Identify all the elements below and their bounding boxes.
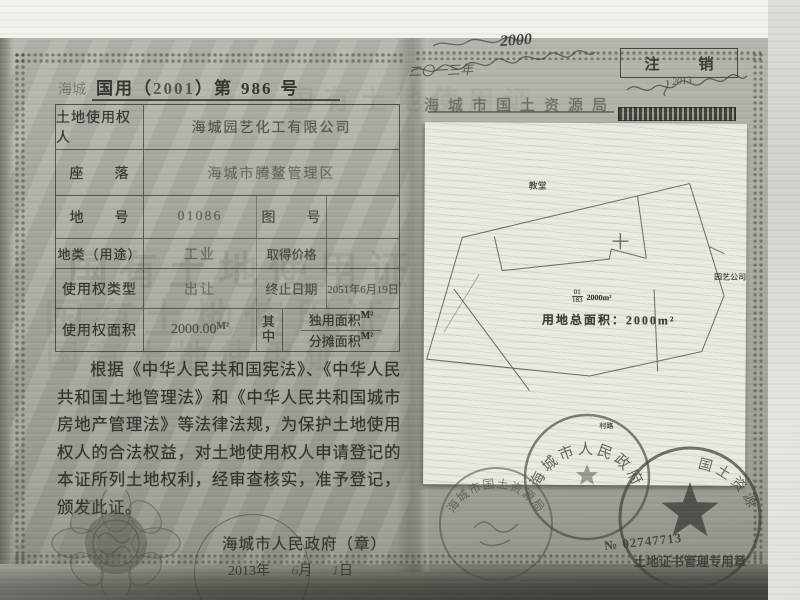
area-value: 2000.00 M² xyxy=(144,309,257,351)
row-label: 使用权面积 xyxy=(56,309,144,351)
row-label: 地 号 xyxy=(56,196,144,238)
area-number: 2000.00 xyxy=(171,322,217,338)
star-icon xyxy=(662,482,719,536)
tenure-type-value: 出让 xyxy=(144,269,257,308)
table-row: 地类（用途） 工业 取得价格 xyxy=(56,239,399,269)
handwritten-date-note: 二〇一三年 xyxy=(408,59,474,80)
location-value: 海城市腾鳌管理区 xyxy=(144,150,399,195)
date-day-suffix: 日 xyxy=(339,564,353,579)
shared-area-cell: 分摊面积 M² xyxy=(301,331,381,352)
table-row: 座 落 海城市腾鳌管理区 xyxy=(56,150,399,196)
sub-unit: M² xyxy=(361,331,373,342)
sub-label: 分摊面积 xyxy=(309,331,361,350)
date-day: 1 xyxy=(332,564,339,579)
serial-suffix: 号 xyxy=(281,79,300,98)
plot-number-value: 01086 xyxy=(144,196,257,238)
map-number-value xyxy=(327,196,399,238)
issuer-line: 海城市人民政府（章） xyxy=(222,532,387,554)
company-label: 园艺公司 xyxy=(714,272,746,283)
issue-date-line: 2013年 6月 1日 xyxy=(228,560,353,580)
border-chain-left xyxy=(14,52,25,564)
serial-part2: ）第 xyxy=(195,79,233,98)
star-seal-caption: 土地证书管理专用章 xyxy=(634,554,747,569)
row-label: 土地使用权人 xyxy=(56,105,144,149)
table-row: 使用权类型 出让 终止日期 2051年6月19日 xyxy=(56,269,399,309)
embossed-flower-seal xyxy=(46,490,186,596)
date-year-suffix: 年 xyxy=(256,564,270,579)
price-value xyxy=(327,239,399,268)
church-label: 教堂 xyxy=(529,179,547,192)
row-label: 座 落 xyxy=(56,150,144,195)
date-month: 6 xyxy=(292,564,299,579)
row-label: 使用权类型 xyxy=(56,269,144,308)
date-month-suffix: 月 xyxy=(299,564,313,579)
cancellation-stamp: 注 销 xyxy=(620,48,738,78)
map-sheet-number: 183 xyxy=(572,297,583,304)
parcel-area: 2000m² xyxy=(587,293,612,302)
sub-area-cells: 独用面积 M² 分摊面积 M² xyxy=(283,309,399,351)
serial-prefix: 海城 xyxy=(58,83,86,98)
qizhong-label: 其中 xyxy=(257,309,283,351)
table-row: 土地使用权人 海城园艺化工有限公司 xyxy=(56,105,399,150)
land-use-table: 土地使用权人 海城园艺化工有限公司 座 落 海城市腾鳌管理区 地 号 01086… xyxy=(55,104,400,352)
land-certificate-star-seal: 国土资源 土地证书管理专用章 xyxy=(608,436,772,600)
rule-line xyxy=(428,111,614,113)
serial-part1: 国用（ xyxy=(96,79,153,98)
smudged-text-box xyxy=(618,107,736,121)
table-row: 使用权面积 2000.00 M² 其中 独用面积 M² 分摊面积 M² xyxy=(56,309,399,351)
row-label2: 图 号 xyxy=(257,196,327,238)
total-area-label: 用地总面积：2000m² xyxy=(542,311,676,329)
certificate-serial-header: 海城国用（2001）第986号 xyxy=(58,74,358,99)
certificate-photo: 国有土地使用证 国有土地使用证 国有土地使用证 国有土地使用证 海城国用（200… xyxy=(0,0,800,600)
holder-value: 海城园艺化工有限公司 xyxy=(144,105,399,149)
row-label2: 取得价格 xyxy=(257,239,327,268)
exclusive-area-cell: 独用面积 M² xyxy=(301,309,381,331)
area-unit: M² xyxy=(217,321,229,332)
row-label2: 终止日期 xyxy=(257,269,327,308)
handwritten-area-note: 2000 xyxy=(499,31,532,51)
date-year: 2013 xyxy=(228,564,256,579)
table-row: 地 号 01086 图 号 xyxy=(56,196,399,239)
page-edge-shadow xyxy=(0,38,14,572)
land-bureau-round-seal: 海城市国土资源局 xyxy=(430,458,562,590)
sub-label: 独用面积 xyxy=(309,310,361,329)
expiry-value: 2051年6月19日 xyxy=(327,269,399,308)
sub-unit: M² xyxy=(361,310,373,321)
serial-year: 2001 xyxy=(153,79,195,98)
row-label: 地类（用途） xyxy=(56,239,144,268)
serial-number: 986 xyxy=(241,79,273,98)
header-underline xyxy=(92,99,340,101)
border-chain-top-left xyxy=(14,52,404,63)
parcel-fraction: 01 183 xyxy=(572,289,583,304)
parcel-fraction-label: 01 183 2000m² xyxy=(572,287,612,305)
land-class-value: 工业 xyxy=(144,239,257,268)
